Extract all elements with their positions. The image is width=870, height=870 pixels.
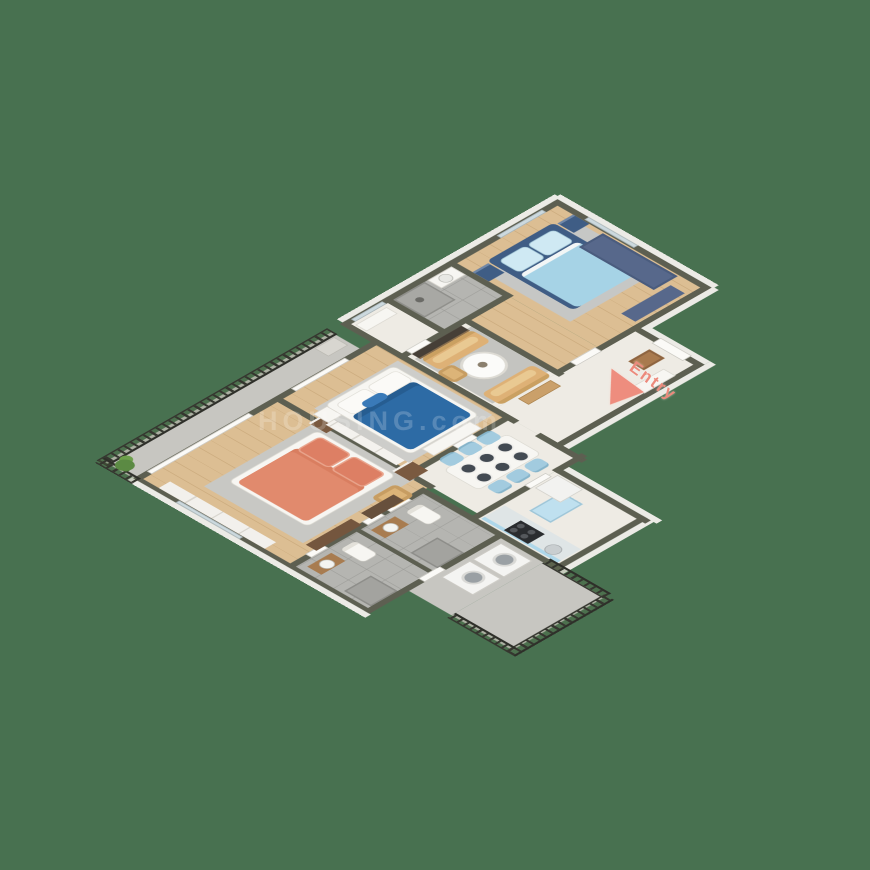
floor-plan-scene: HOUSING.com Entry [0,0,870,870]
isometric-floor-plan [105,202,870,672]
housing-watermark: HOUSING.com [258,406,598,437]
